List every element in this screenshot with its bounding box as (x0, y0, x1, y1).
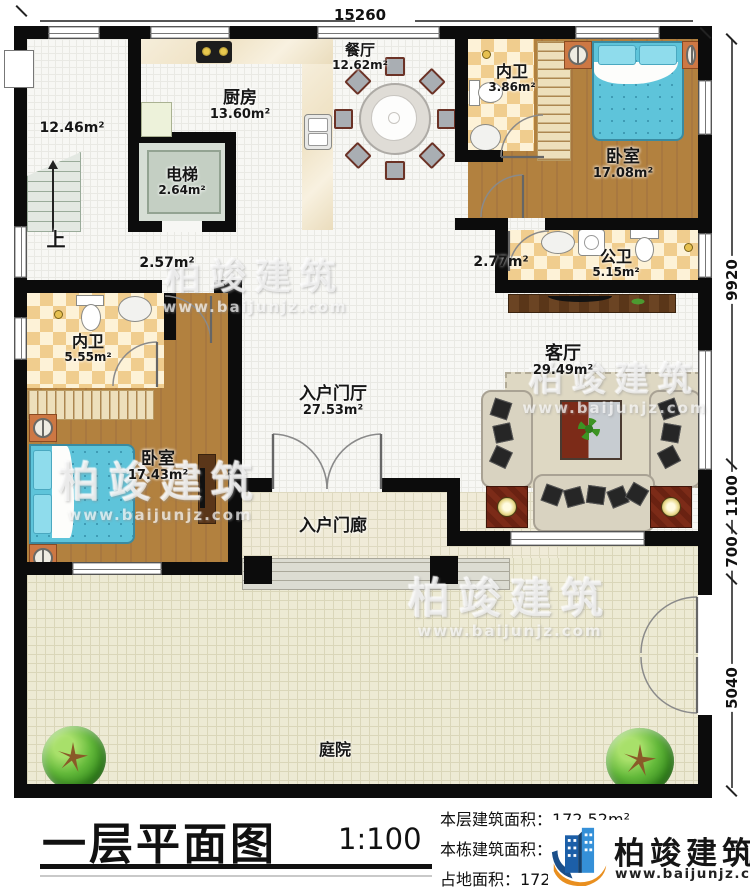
window (150, 26, 230, 39)
sofa-cushion (586, 485, 606, 505)
room-label-foyer: 入户门厅 27.53m² (299, 385, 367, 419)
door-bedroom-top[interactable] (480, 174, 525, 219)
dining-chair (437, 109, 456, 129)
dining-table-center (388, 112, 400, 124)
window (14, 226, 27, 278)
company-logo-url: www.baijunjz.com (615, 866, 750, 882)
stairs-arrow (52, 166, 54, 232)
kitchen-sink-basin1 (308, 118, 328, 132)
window (317, 26, 440, 39)
door-bedroom-left-suite[interactable] (164, 295, 213, 344)
window (575, 26, 660, 39)
wall-block-right (228, 280, 242, 575)
dim-tick (15, 5, 27, 17)
floor-drain (482, 50, 491, 59)
door-bath-top[interactable] (500, 114, 545, 159)
tv-screen-bedroom (200, 468, 205, 508)
room-label-public-bath: 公卫 5.15m² (592, 248, 639, 279)
dim-top-15260: 15260 (334, 6, 386, 24)
wall-pubbath-bottom (495, 280, 712, 293)
table-lamp (497, 497, 517, 517)
room-label-elevator: 电梯 2.64m² (158, 166, 205, 197)
sofa-cushion (661, 423, 682, 444)
dim-right-1100: 1100 (723, 472, 741, 520)
porch-pillar-right (430, 556, 458, 584)
dim-right-700: 700 (723, 533, 741, 570)
nightstand-lamp (568, 45, 588, 65)
area-label-hall-left: 2.57m² (139, 255, 194, 271)
wall-block-top-l (14, 280, 162, 293)
dim-right-5040: 5040 (723, 664, 741, 712)
wall-dining-bath (455, 39, 468, 162)
floor-drain (54, 310, 63, 319)
porch-steps (242, 558, 510, 590)
company-logo-icon (550, 824, 610, 886)
room-label-stairs-up: 上 (46, 230, 65, 251)
title-underline-thick (40, 864, 432, 869)
entrance-double-door[interactable] (272, 433, 382, 490)
sofa-cushion (492, 422, 513, 443)
table-lamp (661, 497, 681, 517)
bed-left-sheet (52, 446, 74, 538)
wall-left (14, 26, 27, 798)
fridge (141, 102, 172, 137)
porch-pillar-left (244, 556, 272, 584)
drawing-title: 一层平面图 (42, 808, 277, 872)
wall-living-bottom-l (447, 531, 510, 546)
floor-plan-sheet: 柏竣建筑 www.baijunjz.com 柏竣建筑 www.baijunjz.… (0, 0, 750, 895)
wall-bottom (14, 784, 712, 798)
stove-burner-right (219, 47, 228, 56)
cabinet-plant (630, 298, 646, 305)
kitchen-counter-top (141, 39, 333, 64)
table-plant (578, 418, 600, 440)
elevator-door-gap (162, 221, 202, 232)
wall-right-lower (698, 715, 712, 784)
area-label-hall-right: 2.77m² (473, 254, 528, 270)
window (698, 350, 712, 470)
dim-right-9920: 9920 (723, 256, 741, 304)
room-label-bath-left: 内卫 5.55m² (64, 333, 111, 364)
wall-foyer-l (242, 478, 272, 492)
title-block: 一层平面图 1:100 本层建筑面积：172.52m² 本栋建筑面积：485.3… (0, 800, 750, 895)
bed-top-pillow-right (639, 45, 677, 65)
room-label-bedroom-left: 卧室 17.43m² (128, 450, 188, 484)
dining-chair (385, 161, 405, 180)
bath-sink (118, 296, 152, 322)
window (510, 531, 645, 546)
courtyard-gate[interactable] (640, 595, 698, 715)
room-label-living: 客厅 29.49m² (533, 344, 593, 379)
bed-left-pillow-bottom (33, 494, 52, 534)
nightstand (564, 41, 592, 69)
nightstand-lamp (686, 45, 696, 65)
room-label-bath-top: 内卫 3.86m² (488, 63, 535, 94)
room-label-courtyard: 庭院 (319, 741, 351, 759)
wall-stair-kitchen (128, 39, 141, 136)
room-label-dining: 餐厅 12.62m² (332, 42, 388, 72)
drawing-scale: 1:100 (338, 822, 422, 856)
dim-line-top (40, 20, 355, 22)
kitchen-sink-basin2 (308, 133, 328, 146)
wall-bathtop-bottom (455, 150, 503, 162)
window (698, 233, 712, 278)
window (72, 562, 162, 575)
stairs-arrowhead (48, 160, 58, 169)
window (698, 80, 712, 135)
nightstand (29, 414, 57, 442)
wall-bedtop-bottom-r (545, 218, 712, 230)
window (48, 26, 100, 39)
dim-line-top (415, 20, 693, 22)
nightstand-lamp (33, 418, 53, 438)
room-label-kitchen: 厨房 13.60m² (210, 89, 270, 123)
chimney-box (4, 50, 34, 88)
door-bath-left[interactable] (112, 341, 159, 388)
stove-burner-left (202, 47, 211, 56)
bath-sink (470, 124, 501, 151)
bed-left-pillow-top (33, 450, 52, 490)
bed-top-pillow-left (598, 45, 636, 65)
floor-drain (684, 243, 693, 252)
toilet-bowl (81, 304, 101, 331)
floor-plan-drawing: 柏竣建筑 www.baijunjz.com 柏竣建筑 www.baijunjz.… (0, 0, 750, 810)
room-label-porch: 入户门廊 (299, 517, 367, 536)
window (14, 317, 27, 360)
company-logo: 柏竣建筑 www.baijunjz.com (548, 820, 750, 892)
title-underline-thin (40, 875, 432, 877)
wall-living-bottom-r (645, 531, 712, 546)
room-label-bedroom-top: 卧室 17.08m² (593, 148, 653, 182)
dining-chair (334, 109, 353, 129)
room-label-storage: 12.46m² (39, 120, 104, 136)
